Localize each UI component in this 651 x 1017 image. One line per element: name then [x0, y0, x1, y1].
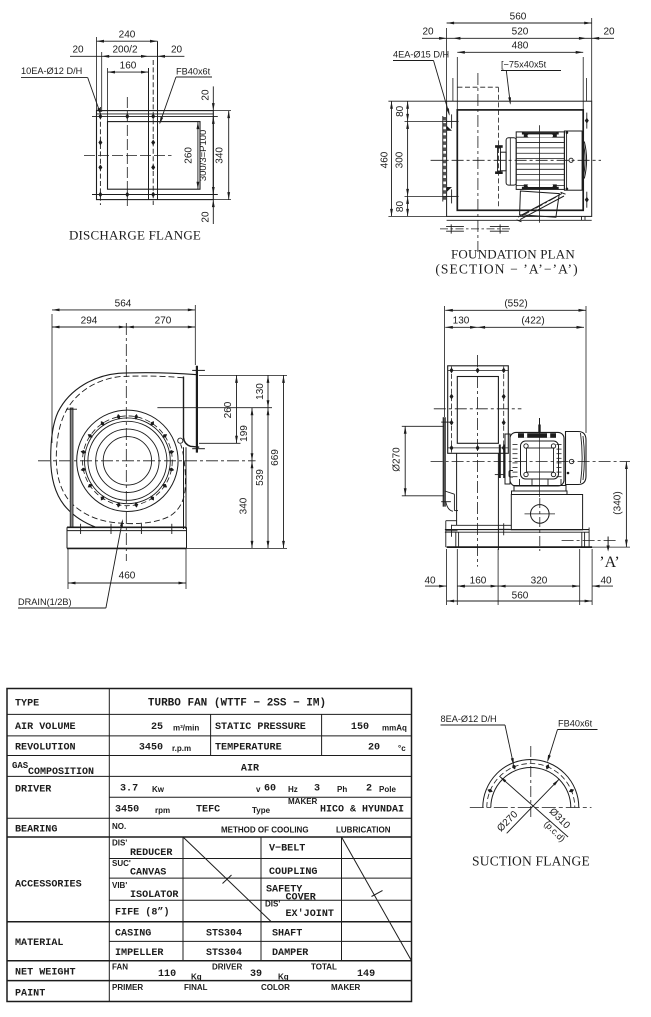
svg-text:PAINT: PAINT	[15, 989, 45, 1000]
svg-text:150: 150	[351, 722, 369, 733]
svg-text:300: 300	[395, 151, 406, 168]
svg-text:MAKER: MAKER	[331, 983, 361, 992]
svg-text:20: 20	[200, 211, 211, 223]
svg-text:DIS': DIS'	[265, 900, 280, 909]
svg-text:IMPELLER: IMPELLER	[115, 948, 164, 959]
svg-text:Type: Type	[252, 806, 271, 815]
svg-text:20: 20	[72, 45, 84, 56]
svg-text:Kg: Kg	[278, 973, 289, 982]
svg-text:8EA-Ø12 D/H: 8EA-Ø12 D/H	[441, 714, 497, 724]
svg-text:4EA-Ø15 D/H: 4EA-Ø15 D/H	[393, 50, 449, 60]
svg-text:Kg: Kg	[191, 973, 202, 982]
svg-text:ISOLATOR: ISOLATOR	[130, 890, 179, 901]
svg-text:r.p.m: r.p.m	[172, 744, 191, 753]
svg-text:20: 20	[171, 45, 183, 56]
svg-text:COVER: COVER	[286, 893, 317, 904]
svg-text:°c: °c	[398, 744, 406, 753]
svg-text:MAKER: MAKER	[288, 797, 318, 806]
svg-text:110: 110	[158, 969, 176, 980]
svg-text:539: 539	[255, 469, 266, 486]
svg-text:340: 340	[214, 147, 225, 164]
svg-text:3.7: 3.7	[120, 784, 138, 795]
svg-text:[−75x40x5t: [−75x40x5t	[501, 60, 547, 70]
svg-text:LUBRICATION: LUBRICATION	[336, 826, 391, 835]
svg-text:20: 20	[603, 27, 615, 38]
svg-text:COMPOSITION: COMPOSITION	[28, 767, 94, 778]
svg-text:3450: 3450	[139, 743, 163, 754]
svg-text:130: 130	[453, 316, 470, 327]
svg-text:480: 480	[512, 40, 529, 51]
svg-text:80: 80	[395, 201, 406, 213]
svg-text:m³/min: m³/min	[173, 724, 199, 733]
svg-text:FIFE (8”): FIFE (8”)	[115, 907, 170, 919]
svg-text:460: 460	[379, 151, 390, 168]
svg-text:’A’: ’A’	[599, 554, 619, 571]
svg-text:40: 40	[424, 576, 436, 587]
svg-text:TYPE: TYPE	[15, 699, 39, 710]
svg-text:294: 294	[81, 315, 98, 326]
svg-text:260: 260	[223, 401, 234, 418]
svg-text:200/2: 200/2	[112, 45, 137, 56]
svg-text:STS304: STS304	[206, 948, 242, 959]
svg-text:20: 20	[368, 743, 380, 754]
svg-text:TURBO FAN (WTTF − 2SS − IM): TURBO FAN (WTTF − 2SS − IM)	[148, 698, 326, 710]
svg-text:DISCHARGE FLANGE: DISCHARGE FLANGE	[69, 228, 201, 243]
svg-text:ACCESSORIES: ACCESSORIES	[15, 880, 82, 891]
svg-text:FOUNDATION PLAN: FOUNDATION PLAN	[451, 246, 575, 261]
svg-text:160: 160	[120, 60, 137, 71]
svg-text:669: 669	[270, 449, 281, 466]
svg-text:3: 3	[314, 784, 320, 795]
svg-text:REDUCER: REDUCER	[130, 848, 173, 859]
svg-text:TEFC: TEFC	[196, 805, 220, 816]
svg-text:CANVAS: CANVAS	[130, 868, 166, 879]
svg-text:340: 340	[238, 497, 249, 514]
svg-text:199: 199	[239, 425, 250, 442]
svg-text:25: 25	[151, 722, 163, 733]
svg-text:2: 2	[366, 784, 372, 795]
svg-text:240: 240	[119, 30, 136, 41]
svg-text:FINAL: FINAL	[184, 983, 208, 992]
svg-text:TOTAL: TOTAL	[311, 963, 337, 972]
svg-text:Ph: Ph	[337, 785, 347, 794]
svg-text:Ø270: Ø270	[392, 447, 403, 472]
svg-text:rpm: rpm	[155, 806, 170, 815]
svg-text:560: 560	[512, 591, 529, 602]
svg-text:COUPLING: COUPLING	[269, 867, 317, 878]
svg-text:STATIC PRESSURE: STATIC PRESSURE	[215, 722, 306, 733]
svg-text:40: 40	[600, 576, 612, 587]
svg-text:FB40x6t: FB40x6t	[176, 67, 211, 77]
svg-text:160: 160	[470, 576, 487, 587]
svg-text:FB40x6t: FB40x6t	[558, 719, 593, 729]
svg-text:V−BELT: V−BELT	[269, 844, 305, 855]
svg-text:DRIVER: DRIVER	[15, 785, 52, 796]
svg-text:(552): (552)	[504, 299, 527, 310]
svg-text:520: 520	[512, 27, 529, 38]
svg-text:METHOD OF COOLING: METHOD OF COOLING	[221, 826, 309, 835]
svg-text:20: 20	[200, 89, 211, 101]
svg-text:3450: 3450	[115, 805, 139, 816]
svg-text:FAN: FAN	[112, 963, 128, 972]
svg-text:560: 560	[510, 11, 527, 22]
svg-text:HICO & HYUNDAI: HICO & HYUNDAI	[320, 805, 404, 816]
svg-text:20: 20	[422, 27, 434, 38]
svg-text:149: 149	[357, 969, 375, 980]
svg-text:STS304: STS304	[206, 929, 242, 940]
svg-text:CASING: CASING	[115, 929, 151, 940]
svg-text:270: 270	[155, 315, 172, 326]
svg-text:NET WEIGHT: NET WEIGHT	[15, 968, 76, 979]
svg-text:DRIVER: DRIVER	[212, 963, 242, 972]
svg-text:300/3=P100: 300/3=P100	[198, 130, 209, 182]
svg-text:10EA-Ø12 D/H: 10EA-Ø12 D/H	[21, 66, 82, 76]
svg-text:Hz: Hz	[288, 785, 298, 794]
svg-text:TEMPERATURE: TEMPERATURE	[215, 743, 282, 754]
svg-text:v: v	[256, 785, 261, 794]
svg-text:EX'JOINT: EX'JOINT	[286, 908, 334, 920]
svg-text:(SECTION − ’A’−’A’): (SECTION − ’A’−’A’)	[435, 261, 578, 276]
svg-text:SHAFT: SHAFT	[272, 929, 302, 940]
svg-text:DAMPER: DAMPER	[272, 948, 309, 959]
svg-text:SUC': SUC'	[112, 859, 131, 868]
svg-text:60: 60	[264, 784, 276, 795]
svg-text:PRIMER: PRIMER	[112, 983, 143, 992]
svg-text:564: 564	[115, 298, 132, 309]
svg-text:DIS': DIS'	[112, 839, 127, 848]
svg-text:SUCTION FLANGE: SUCTION FLANGE	[472, 853, 590, 868]
svg-text:80: 80	[395, 105, 406, 117]
svg-text:260: 260	[184, 147, 195, 164]
svg-text:AIR: AIR	[241, 764, 260, 775]
svg-text:NO.: NO.	[112, 822, 126, 831]
svg-text:GAS: GAS	[12, 761, 29, 771]
svg-text:130: 130	[255, 383, 266, 400]
svg-text:AIR VOLUME: AIR VOLUME	[15, 722, 76, 733]
svg-text:VIB': VIB'	[112, 881, 127, 890]
svg-text:DRAIN(1/2B): DRAIN(1/2B)	[18, 597, 72, 607]
svg-text:Kw: Kw	[152, 785, 165, 794]
svg-text:(422): (422)	[521, 316, 544, 327]
svg-text:320: 320	[531, 576, 548, 587]
svg-text:Pole: Pole	[379, 785, 396, 794]
svg-text:REVOLUTION: REVOLUTION	[15, 743, 76, 754]
svg-text:39: 39	[250, 969, 262, 980]
svg-text:COLOR: COLOR	[261, 983, 290, 992]
svg-text:MATERIAL: MATERIAL	[15, 938, 63, 949]
svg-text:mmAq: mmAq	[382, 724, 407, 733]
svg-text:460: 460	[119, 571, 136, 582]
svg-text:BEARING: BEARING	[15, 825, 57, 836]
svg-text:(340): (340)	[612, 491, 623, 514]
